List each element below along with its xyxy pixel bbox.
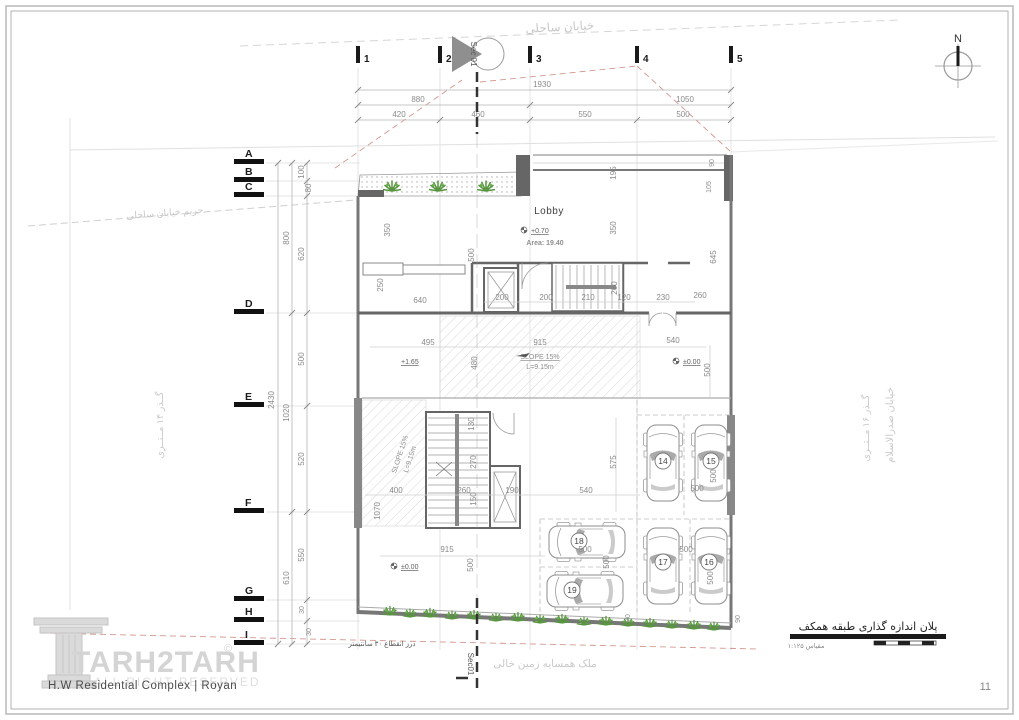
dim-label: 30 — [306, 628, 313, 636]
dim-label: 1020 — [282, 404, 291, 422]
level-marker-icon — [391, 563, 397, 569]
left-dimensions: 2430 800 1020 610 100 80 620 500 520 550… — [267, 165, 313, 636]
copyright-icon: © — [224, 643, 232, 655]
dim-label: 230 — [656, 293, 670, 302]
double-door-right — [649, 313, 676, 326]
grid-row-label: D — [245, 298, 253, 310]
parking-number: 15 — [706, 456, 716, 466]
dim-label: 200 — [539, 293, 553, 302]
grid-row-label: F — [245, 497, 252, 509]
north-label: N — [954, 33, 962, 45]
section-label: Sec01 — [466, 653, 475, 676]
level-zero: ±0.00 — [683, 359, 701, 366]
core-door — [493, 413, 514, 434]
parking-number: 17 — [658, 557, 668, 567]
grid-col-label: 5 — [737, 54, 743, 65]
street-right-label: خیابان صدرالاسلام — [885, 387, 896, 463]
dim-label: 500 — [676, 110, 690, 119]
scale-label: مقیاس ۱:۱۲۵ — [788, 642, 825, 650]
dim-label: 190 — [505, 486, 519, 495]
level-zero: ±0.00 — [401, 564, 419, 571]
reception-desk — [363, 263, 403, 275]
grid-col-label: 3 — [536, 54, 542, 65]
dim-label: 500 — [466, 558, 475, 572]
neighbor-label: ملک همسایه زمین خالی — [493, 658, 597, 670]
dim-label: 645 — [709, 250, 718, 264]
dim-label: 500 — [709, 469, 718, 483]
dim-label: 620 — [297, 247, 306, 261]
elevator-lower — [490, 466, 520, 528]
grid-row-label: H — [245, 606, 253, 618]
dim-label: 500 — [679, 545, 693, 554]
setback-label: حریم خیابان ساحلی — [126, 205, 204, 222]
dim-label: 1930 — [533, 80, 551, 89]
grid-row-label: B — [245, 166, 253, 178]
dim-label: 260 — [693, 291, 707, 300]
sheet-title: پلان اندازه گذاری طبقه همکف — [799, 620, 938, 633]
dim-label: 400 — [389, 486, 403, 495]
slope-length: L=9.15m — [526, 364, 554, 371]
parking-number: 19 — [567, 585, 577, 595]
dim-label: 915 — [440, 545, 454, 554]
dim-label: 550 — [578, 110, 592, 119]
dim-label: 1070 — [373, 502, 382, 520]
dim-label: 30 — [299, 606, 306, 614]
floor-plan-drawing: 14 15 16 17 18 19 — [0, 0, 1019, 720]
dim-label: 880 — [411, 95, 425, 104]
dim-label: 500 — [467, 248, 476, 262]
dim-label: 120 — [617, 293, 631, 302]
lobby-label: Lobby — [534, 206, 564, 217]
dim-label: 800 — [282, 231, 291, 245]
dim-label: 2430 — [267, 391, 276, 409]
level-165: +1.65 — [401, 359, 419, 366]
dim-label: 90 — [735, 615, 742, 623]
dim-label: 575 — [609, 455, 618, 469]
north-arrow-icon: N — [935, 33, 981, 88]
drawing-sheet: 14 15 16 17 18 19 — [0, 0, 1019, 720]
section-label: Sec 01 — [469, 42, 478, 67]
dim-label: 350 — [383, 223, 392, 237]
graphic-scale-bar — [874, 641, 936, 645]
parked-cars: 14 15 16 17 18 19 — [547, 425, 731, 611]
title-block: پلان اندازه گذاری طبقه همکف مقیاس ۱:۱۲۵ — [788, 620, 946, 650]
elevator-upper — [484, 268, 518, 312]
grid-col-label: 2 — [446, 54, 452, 65]
dim-label: 260 — [610, 281, 619, 295]
grid-row-label: E — [245, 391, 252, 403]
dim-label: 640 — [413, 296, 427, 305]
dim-label: 420 — [392, 110, 406, 119]
street-left-label: گــذر ۱۴ مــتــری — [154, 391, 166, 458]
dim-label: 350 — [609, 221, 618, 235]
dim-label: 500 — [602, 555, 611, 569]
dim-label: 80 — [304, 183, 313, 192]
dim-label: 495 — [421, 338, 435, 347]
grid-row-label: C — [245, 181, 253, 193]
dim-label: 200 — [495, 293, 509, 302]
dim-label: 915 — [533, 338, 547, 347]
dim-label: 610 — [282, 571, 291, 585]
dim-label: 480 — [470, 356, 479, 370]
dim-label: 70 — [625, 614, 632, 622]
expansion-joint-label: درز انقطاع ۳۰ سانتیمتر — [348, 640, 416, 648]
dim-label: 500 — [578, 545, 592, 554]
dim-label: 500 — [703, 363, 712, 377]
lobby-door — [522, 263, 548, 289]
parking-number: 14 — [658, 456, 668, 466]
dim-label: 90 — [709, 159, 716, 167]
dim-label: 460 — [471, 110, 485, 119]
dim-label: 500 — [297, 352, 306, 366]
section-marker-top: Sec 01 — [452, 36, 504, 134]
car-19 — [547, 572, 623, 611]
dim-label: 540 — [666, 336, 680, 345]
dim-label: 195 — [609, 166, 618, 180]
level-marker-icon — [673, 358, 679, 364]
project-title: H.W Residential Complex | Royan — [48, 680, 237, 692]
dim-label: 210 — [581, 293, 595, 302]
passage-right-label: گــذر ۱۶ مــتــری — [860, 394, 872, 461]
grid-col-label: 4 — [643, 54, 649, 65]
dim-label: 105 — [706, 181, 713, 193]
dim-label: 500 — [706, 571, 715, 585]
lobby-area: Area: 19.40 — [526, 240, 563, 247]
parking-number: 16 — [704, 557, 714, 567]
stairs-lower — [426, 412, 490, 528]
street-top-label: خیابان ساحلی — [525, 18, 595, 36]
grid-col-label: 1 — [364, 54, 370, 65]
dim-label: 250 — [376, 278, 385, 292]
grid-row-label: G — [245, 585, 253, 597]
dim-label: 520 — [297, 452, 306, 466]
dim-label: 500 — [690, 484, 704, 493]
dim-label: 540 — [579, 486, 593, 495]
dim-label: 100 — [297, 165, 306, 179]
top-dimensions: 1930 880 1050 420 460 550 500 — [392, 80, 694, 119]
dim-label: 130 — [467, 417, 476, 431]
grid-row-label: A — [245, 148, 253, 160]
brand-watermark: TARH2TARH © ALL RIGHT RESERVED — [34, 618, 261, 689]
page-number: 11 — [980, 681, 991, 693]
dim-label: 1050 — [676, 95, 694, 104]
dim-label: 550 — [297, 548, 306, 562]
grid-row-label: I — [245, 629, 248, 641]
level-marker-icon — [521, 227, 527, 233]
lobby-level: +0.70 — [531, 228, 549, 235]
